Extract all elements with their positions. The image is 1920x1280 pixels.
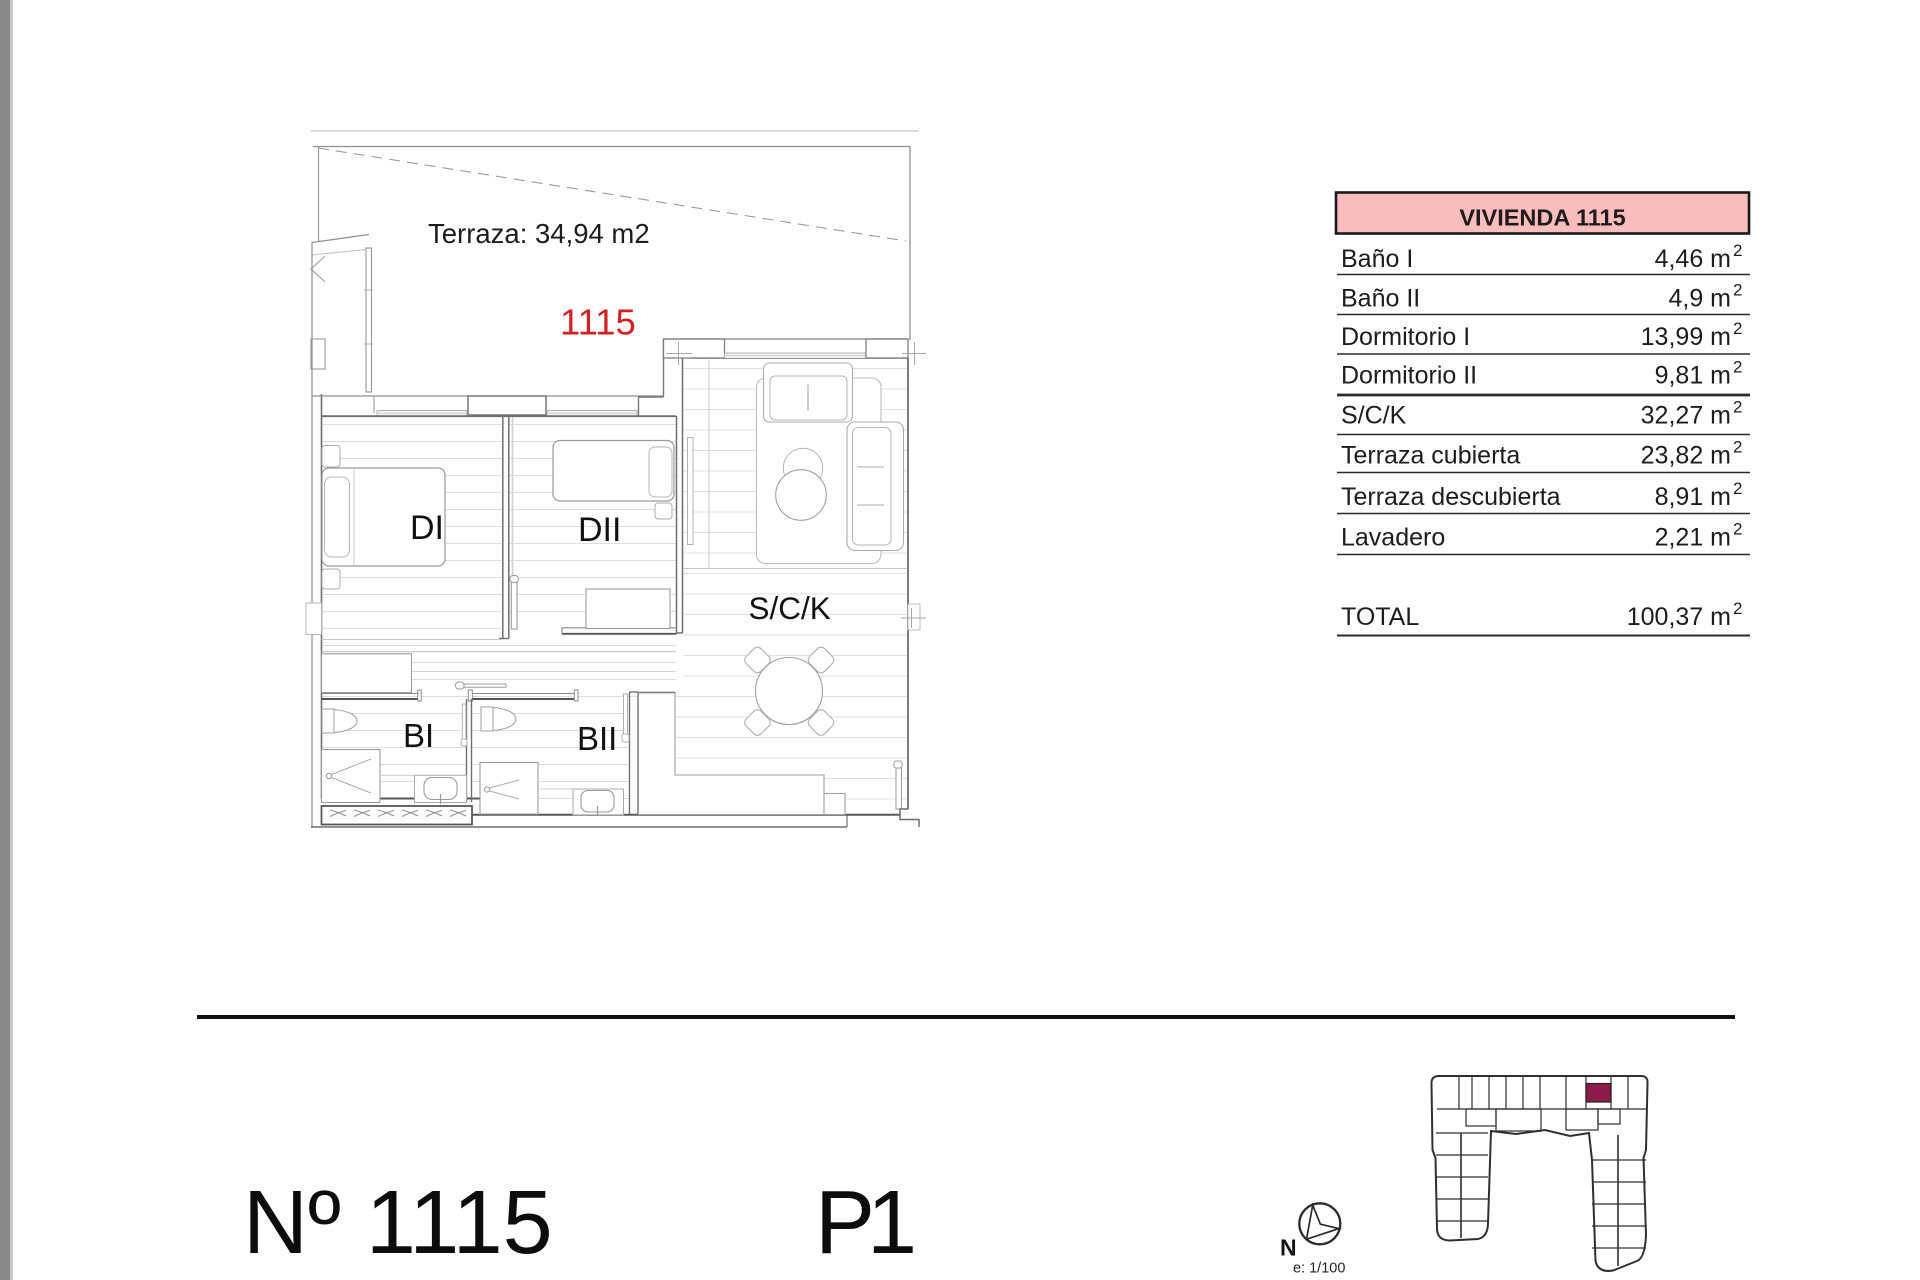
- svg-text:2: 2: [1733, 398, 1742, 417]
- svg-text:2: 2: [1733, 319, 1742, 338]
- svg-text:Baño II: Baño II: [1341, 285, 1420, 313]
- svg-text:Dormitorio II: Dormitorio II: [1341, 362, 1477, 390]
- svg-text:Baño I: Baño I: [1341, 245, 1413, 273]
- svg-text:VIVIENDA 1115: VIVIENDA 1115: [1459, 205, 1625, 231]
- svg-text:100,37 m: 100,37 m: [1627, 603, 1731, 631]
- svg-text:Terraza descubierta: Terraza descubierta: [1341, 483, 1561, 511]
- svg-text:DII: DII: [578, 511, 621, 549]
- svg-text:2: 2: [1733, 479, 1742, 498]
- svg-text:1115: 1115: [560, 302, 636, 343]
- svg-text:BI: BI: [403, 717, 434, 754]
- svg-text:TOTAL: TOTAL: [1341, 603, 1419, 631]
- svg-text:DI: DI: [410, 509, 444, 547]
- svg-text:Nº 1115: Nº 1115: [243, 1173, 553, 1273]
- svg-text:2: 2: [1733, 241, 1742, 260]
- svg-text:Terraza: 34,94 m2: Terraza: 34,94 m2: [428, 218, 650, 249]
- svg-text:9,81 m: 9,81 m: [1655, 362, 1731, 390]
- svg-text:e: 1/100: e: 1/100: [1293, 1261, 1345, 1277]
- svg-text:32,27 m: 32,27 m: [1641, 402, 1731, 430]
- svg-text:2: 2: [1733, 599, 1742, 618]
- svg-text:13,99 m: 13,99 m: [1641, 323, 1731, 351]
- svg-text:8,91 m: 8,91 m: [1655, 483, 1731, 511]
- svg-text:N: N: [1280, 1235, 1297, 1261]
- svg-text:S/C/K: S/C/K: [749, 590, 831, 626]
- svg-text:S/C/K: S/C/K: [1341, 402, 1407, 430]
- svg-text:4,46 m: 4,46 m: [1655, 245, 1731, 273]
- svg-text:P1: P1: [815, 1173, 913, 1273]
- svg-text:2: 2: [1733, 358, 1742, 377]
- svg-text:2: 2: [1733, 438, 1742, 457]
- svg-text:2: 2: [1733, 520, 1742, 539]
- svg-text:4,9 m: 4,9 m: [1668, 285, 1731, 313]
- svg-text:2,21 m: 2,21 m: [1655, 524, 1731, 552]
- svg-text:2: 2: [1733, 281, 1742, 300]
- svg-text:23,82 m: 23,82 m: [1641, 442, 1731, 470]
- svg-text:Terraza cubierta: Terraza cubierta: [1341, 442, 1520, 470]
- svg-text:Dormitorio I: Dormitorio I: [1341, 323, 1470, 351]
- svg-text:Lavadero: Lavadero: [1341, 524, 1445, 552]
- svg-text:BII: BII: [577, 720, 617, 757]
